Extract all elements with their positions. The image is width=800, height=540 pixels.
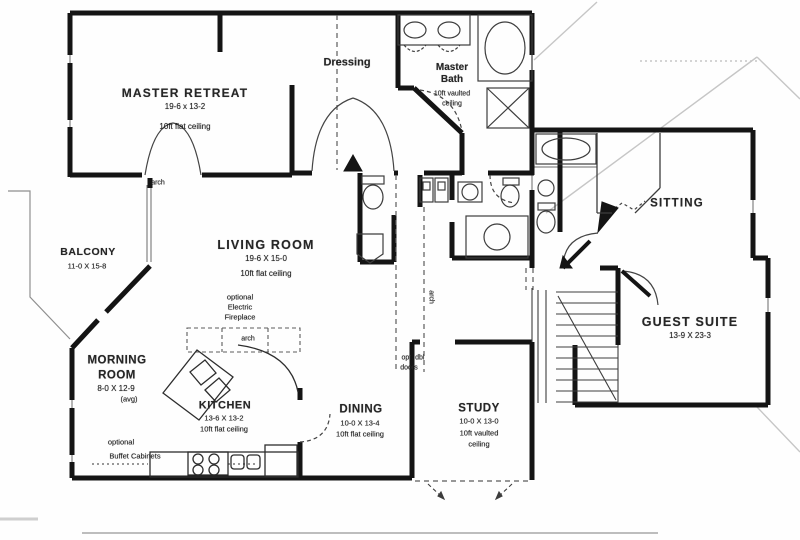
- room-dims-guest-suite: 13-9 X 23-3: [669, 332, 711, 340]
- room-label-master-bath-2: Bath: [441, 75, 463, 85]
- porch-door-arrows: [428, 484, 512, 499]
- note-fireplace-3: Fireplace: [225, 313, 256, 321]
- room-dims-master-retreat: 19-6 x 13-2: [165, 103, 205, 111]
- door-arcs: [145, 90, 658, 442]
- note-dbl-doors-1: opt. dbl: [402, 355, 425, 362]
- room-label-study: STUDY: [458, 403, 499, 415]
- room-label-dining: DINING: [339, 404, 382, 416]
- ceiling-note-master-retreat: 10ft flat ceiling: [159, 123, 210, 131]
- note-buffet-1: optional: [108, 438, 134, 446]
- ceiling-note-master-bath-2: ceiling: [442, 101, 462, 108]
- ceiling-note-study-1: 10ft vaulted: [460, 429, 499, 437]
- note-arch-master: arch: [151, 180, 165, 187]
- note-fireplace-2: Electric: [228, 303, 253, 311]
- door-leaves: [344, 155, 650, 296]
- room-label-balcony: BALCONY: [60, 247, 115, 258]
- room-dims-morning-room: 8-0 X 12-9: [97, 385, 134, 393]
- room-label-morning-room-1: MORNING: [87, 355, 146, 367]
- room-label-kitchen: KITCHEN: [199, 401, 251, 412]
- ceiling-note-living-room: 10ft flat ceiling: [240, 270, 291, 278]
- room-label-master-retreat: MASTER RETREAT: [122, 87, 249, 99]
- wall-guides: [70, 13, 768, 478]
- ceiling-note-master-bath-1: 10ft vaulted: [434, 91, 470, 98]
- room-dims-dining: 10-0 X 13-4: [340, 419, 379, 427]
- note-buffet-2: Buffet Cabinets: [109, 452, 160, 460]
- room-label-living-room: LIVING ROOM: [217, 239, 314, 252]
- room-dims-kitchen: 13-6 X 13-2: [204, 414, 243, 422]
- note-arch-fireplace: arch: [241, 336, 255, 343]
- ceiling-note-kitchen: 10ft flat ceiling: [200, 425, 248, 433]
- note-arch-hall: arch: [428, 290, 435, 304]
- room-dims-living-room: 19-6 X 15-0: [245, 255, 287, 263]
- room-label-sitting: SITTING: [650, 198, 704, 210]
- room-label-morning-room-2: ROOM: [98, 370, 136, 382]
- room-note-morning-room: (avg): [120, 395, 137, 403]
- walls: [70, 13, 768, 480]
- ceiling-note-study-2: ceiling: [468, 440, 489, 448]
- room-label-guest-suite: GUEST SUITE: [642, 316, 739, 329]
- room-dims-balcony: 11-0 X 15-8: [68, 262, 107, 270]
- ceiling-note-dining: 10ft flat ceiling: [336, 430, 384, 438]
- note-dbl-doors-2: doors: [400, 365, 418, 372]
- floor-plan: MASTER RETREAT 19-6 x 13-2 10ft flat cei…: [0, 0, 800, 540]
- room-dims-study: 10-0 X 13-0: [459, 417, 498, 425]
- note-fireplace-1: optional: [227, 293, 253, 301]
- room-label-dressing: Dressing: [323, 58, 370, 69]
- room-label-master-bath-1: Master: [436, 63, 468, 73]
- balcony-outline: [8, 191, 70, 339]
